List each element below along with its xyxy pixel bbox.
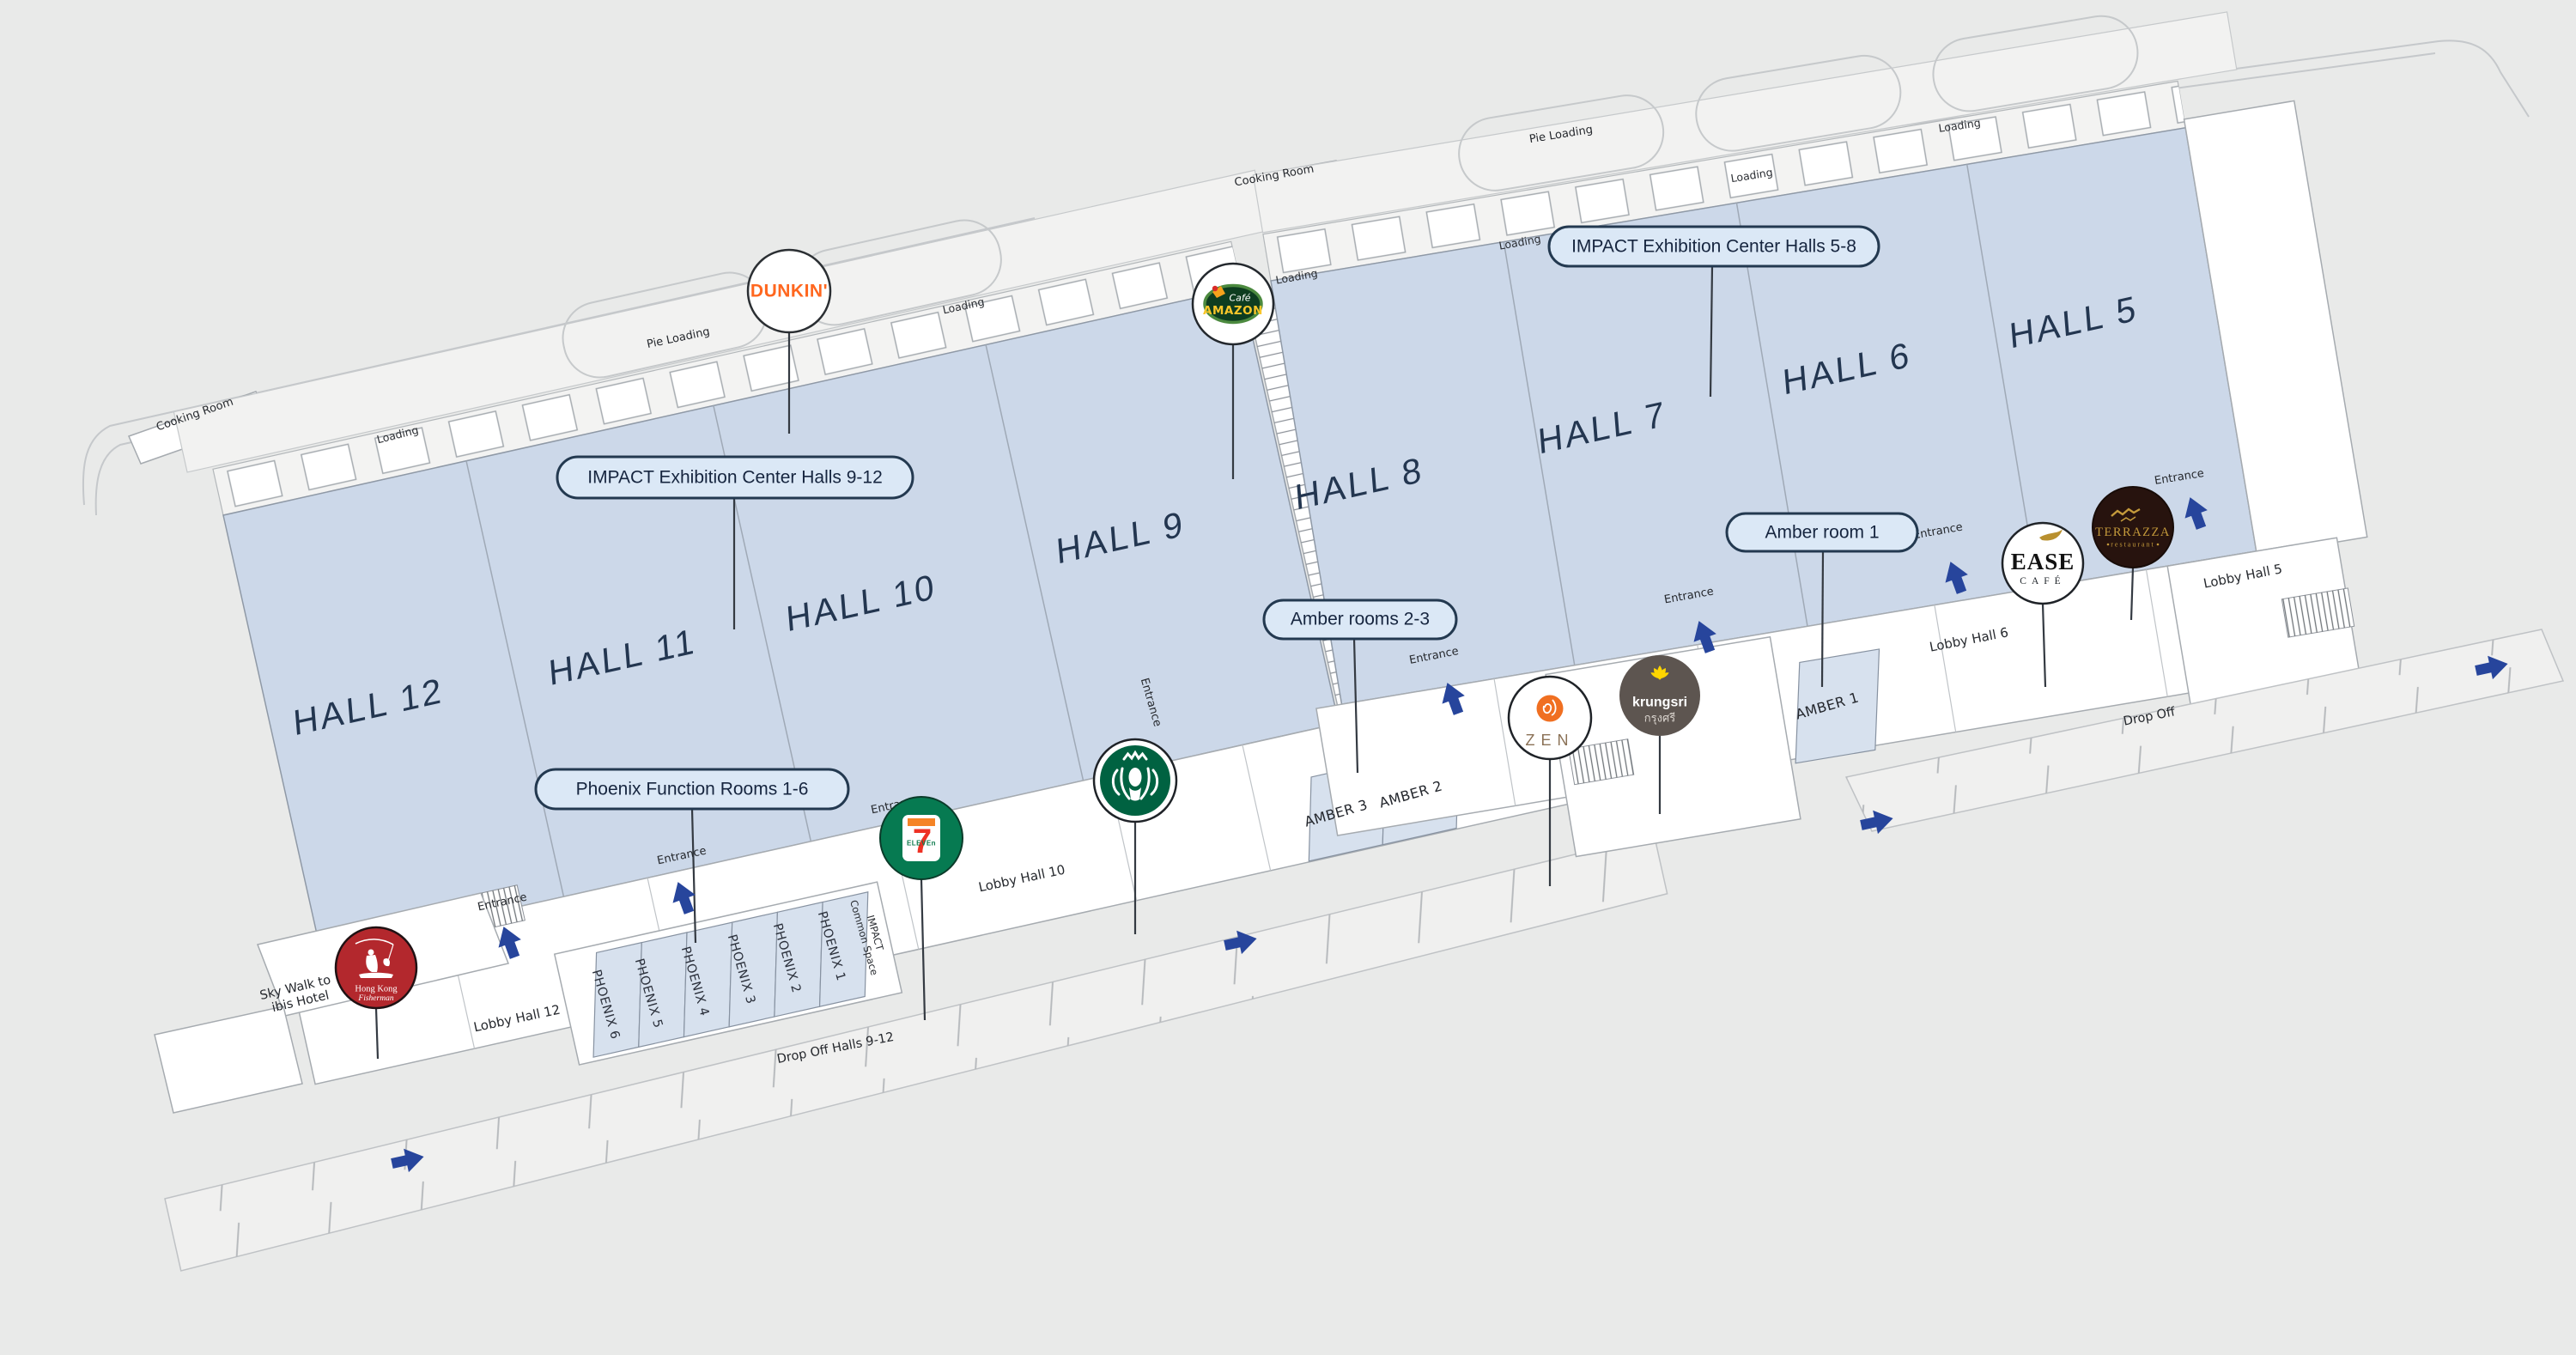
krungsri-wordmark: krungsri: [1632, 696, 1687, 710]
callout-amber-room-1-label: Amber room 1: [1765, 523, 1879, 543]
seven-eleven-word: ELEVEn: [907, 840, 936, 848]
callout-phoenix-rooms[interactable]: Phoenix Function Rooms 1-6: [536, 769, 848, 809]
fisherman-text: Fisherman: [357, 994, 393, 1003]
callout-halls-5-8[interactable]: IMPACT Exhibition Center Halls 5-8: [1549, 227, 1879, 266]
cafe-amazon-top-text: Café: [1229, 293, 1250, 304]
callout-halls-9-12-label: IMPACT Exhibition Center Halls 9-12: [587, 468, 883, 488]
callout-halls-9-12[interactable]: IMPACT Exhibition Center Halls 9-12: [557, 457, 913, 498]
callout-amber-room-1[interactable]: Amber room 1: [1727, 513, 1917, 551]
dunkin-logo-pin[interactable]: DUNKIN': [748, 250, 830, 332]
cafe-amazon-wordmark: AMAZON: [1203, 304, 1263, 318]
hong-kong-text: Hong Kong: [355, 985, 398, 994]
impact-floorplan-map: HALL 12 HALL 11 HALL 10 HALL 9 HALL 8 HA…: [0, 0, 2576, 1355]
ease-cafe-text: CAFÉ: [2020, 574, 2065, 586]
terrazza-wordmark: TERRAZZA: [2095, 526, 2171, 539]
callout-halls-5-8-label: IMPACT Exhibition Center Halls 5-8: [1571, 237, 1856, 257]
ease-wordmark: EASE: [2011, 549, 2075, 574]
zen-wordmark: ZEN: [1526, 732, 1575, 749]
terrazza-logo-pin[interactable]: TERRAZZA restaurant: [2093, 487, 2173, 568]
callout-amber-rooms-2-3[interactable]: Amber rooms 2-3: [1264, 600, 1456, 639]
terrazza-restaurant-text: restaurant: [2111, 541, 2155, 549]
ease-cafe-logo-pin[interactable]: EASE CAFÉ: [2002, 523, 2083, 604]
zen-brush-icon: [1537, 696, 1564, 722]
cafe-amazon-logo-pin[interactable]: Café AMAZON: [1193, 264, 1273, 344]
seven-eleven-logo-pin[interactable]: 7 ELEVEn: [880, 797, 963, 879]
krungsri-logo-pin[interactable]: krungsri กรุงศรี: [1619, 655, 1700, 736]
starbucks-logo-pin[interactable]: [1094, 739, 1176, 822]
krungsri-thai-text: กรุงศรี: [1644, 712, 1675, 726]
dunkin-wordmark: DUNKIN': [750, 282, 828, 301]
callout-amber-rooms-2-3-label: Amber rooms 2-3: [1291, 610, 1430, 629]
callout-phoenix-rooms-label: Phoenix Function Rooms 1-6: [576, 780, 809, 799]
hong-kong-fisherman-logo-pin[interactable]: Hong Kong Fisherman: [336, 927, 416, 1008]
floorplan-svg: HALL 12 HALL 11 HALL 10 HALL 9 HALL 8 HA…: [0, 0, 2576, 1355]
zen-logo-pin[interactable]: ZEN: [1509, 677, 1591, 759]
